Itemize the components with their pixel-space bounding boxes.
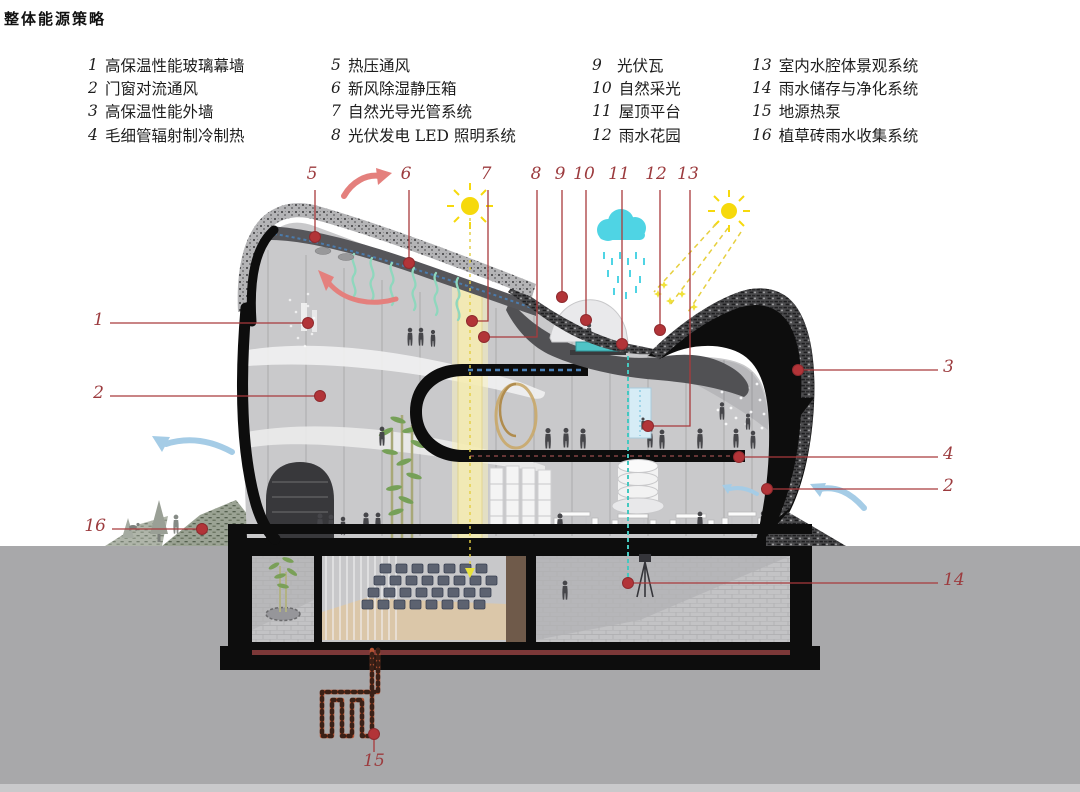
energy-strategy-diagram: 整体能源策略 1高保温性能玻璃幕墙 2门窗对流通风 3高保温性能外墙 4毛细管辐… [0, 0, 1080, 792]
legend-column-1: 1高保温性能玻璃幕墙 2门窗对流通风 3高保温性能外墙 4毛细管辐射制冷制热 [88, 53, 245, 147]
legend-item: 7自然光导光管系统 [331, 100, 516, 123]
callout-number-9: 9 [555, 166, 566, 183]
callout-number-11: 11 [608, 166, 630, 183]
callout-number-8: 8 [531, 166, 542, 183]
callout-number-10: 10 [573, 166, 595, 183]
planter-pot [266, 608, 300, 621]
legend-column-3: 9光伏瓦 10自然采光 11屋顶平台 12雨水花园 [592, 53, 681, 147]
warm-air-arrow-exterior [344, 168, 392, 196]
legend-item: 16植草砖雨水收集系统 [752, 123, 918, 146]
callout-number-1: 1 [74, 312, 104, 329]
legend-item: 3高保温性能外墙 [88, 100, 245, 123]
legend-item: 15地源热泵 [752, 100, 918, 123]
legend-item: 4毛细管辐射制冷制热 [88, 123, 245, 146]
legend-item: 5热压通风 [331, 53, 516, 76]
page-title: 整体能源策略 [4, 8, 106, 29]
legend-item: 10自然采光 [592, 76, 681, 99]
basement [220, 528, 820, 670]
legend-item: 14雨水储存与净化系统 [752, 76, 918, 99]
pedestrian-figure [173, 515, 178, 534]
legend-column-4: 13室内水腔体景观系统 14雨水储存与净化系统 15地源热泵 16植草砖雨水收集… [752, 53, 918, 147]
callout-number-2-right: 2 [943, 478, 954, 495]
legend-item: 1高保温性能玻璃幕墙 [88, 53, 245, 76]
sun-icon [447, 183, 493, 229]
legend-item: 11屋顶平台 [592, 100, 681, 123]
legend-item: 12雨水花园 [592, 123, 681, 146]
legend-item: 6新风除湿静压箱 [331, 76, 516, 99]
round-bookshelf-tower [612, 460, 664, 515]
callout-number-3: 3 [943, 359, 954, 376]
legend-item: 8光伏发电 LED 照明系统 [331, 123, 516, 146]
legend-item: 9光伏瓦 [592, 53, 681, 76]
legend-item: 13室内水腔体景观系统 [752, 53, 918, 76]
callout-number-7: 7 [481, 166, 492, 183]
legend-column-2: 5热压通风 6新风除湿静压箱 7自然光导光管系统 8光伏发电 LED 照明系统 [331, 53, 516, 147]
callout-number-5: 5 [307, 166, 318, 183]
callout-number-13: 13 [677, 166, 699, 183]
callout-number-12: 12 [645, 166, 667, 183]
rain-drops [604, 252, 644, 299]
legend-item: 2门窗对流通风 [88, 76, 245, 99]
callout-number-6: 6 [401, 166, 412, 183]
callout-number-14: 14 [943, 572, 965, 589]
callout-number-2-left: 2 [74, 385, 104, 402]
callout-number-4: 4 [943, 446, 954, 463]
cool-air-arrow-left [152, 436, 232, 452]
cool-air-arrow-right [810, 483, 864, 508]
callout-number-16: 16 [70, 518, 106, 535]
callout-number-15: 15 [363, 753, 385, 770]
